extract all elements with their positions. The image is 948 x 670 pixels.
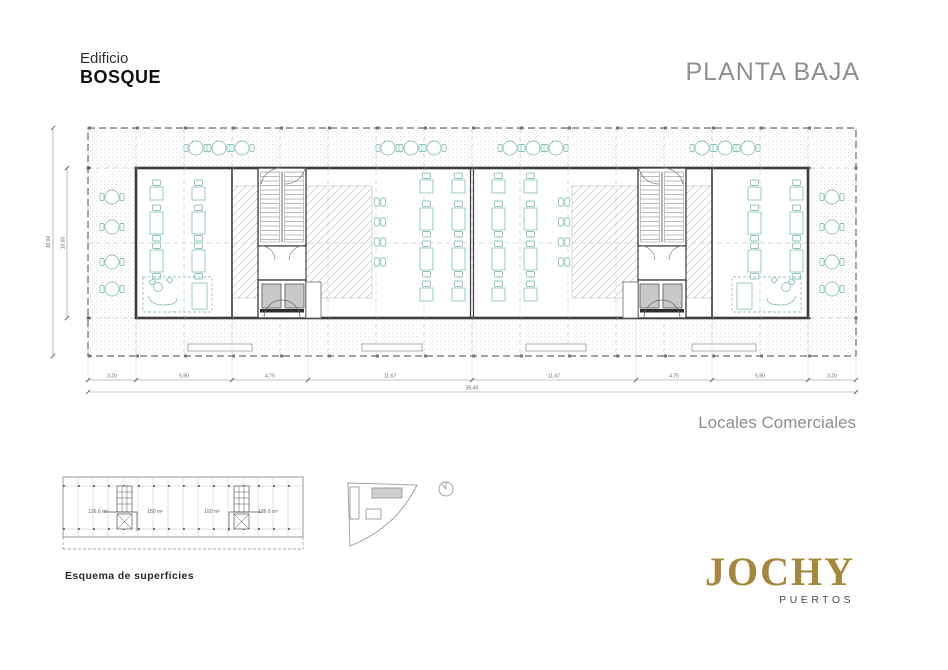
- north-arrow-icon: [439, 482, 453, 496]
- dimension-lines-vertical: 16.00 10.00: [46, 126, 69, 358]
- dim-label: 4.75: [669, 374, 679, 380]
- dim-label: 5.90: [755, 374, 765, 380]
- esquema-title: Esquema de superficies: [65, 570, 194, 582]
- area-label: 150 m²: [204, 509, 220, 515]
- area-label: 136.6 m²: [258, 509, 278, 515]
- dim-label: 11.67: [548, 374, 560, 380]
- dim-label: 3.20: [827, 374, 837, 380]
- company-logo-subtitle: PUERTOS: [779, 594, 854, 606]
- company-logo: JOCHY: [705, 548, 855, 595]
- drawing-sheet: 3.20 5.90 4.75 11.67 11.67 4.75 5.90 3.2…: [0, 0, 948, 670]
- plan-title: PLANTA BAJA: [686, 58, 861, 87]
- dim-total-label: 35.40: [466, 386, 479, 392]
- site-key-plan: [348, 483, 417, 546]
- building-label: Edificio: [80, 50, 128, 67]
- dim-label: 3.20: [107, 374, 117, 380]
- plan-caption: Locales Comerciales: [698, 413, 856, 433]
- dim-label: 5.90: [179, 374, 189, 380]
- dim-label: 10.00: [61, 237, 67, 250]
- area-label: 136.6 m²: [88, 509, 108, 515]
- area-label: 150 m²: [147, 509, 163, 515]
- dim-label: 4.75: [265, 374, 275, 380]
- esquema-plan: 136.6 m² 150 m² 150 m² 136.6 m²: [63, 477, 303, 549]
- building-name: BOSQUE: [80, 67, 161, 88]
- dim-label: 11.67: [384, 374, 396, 380]
- dim-label: 16.00: [46, 236, 52, 249]
